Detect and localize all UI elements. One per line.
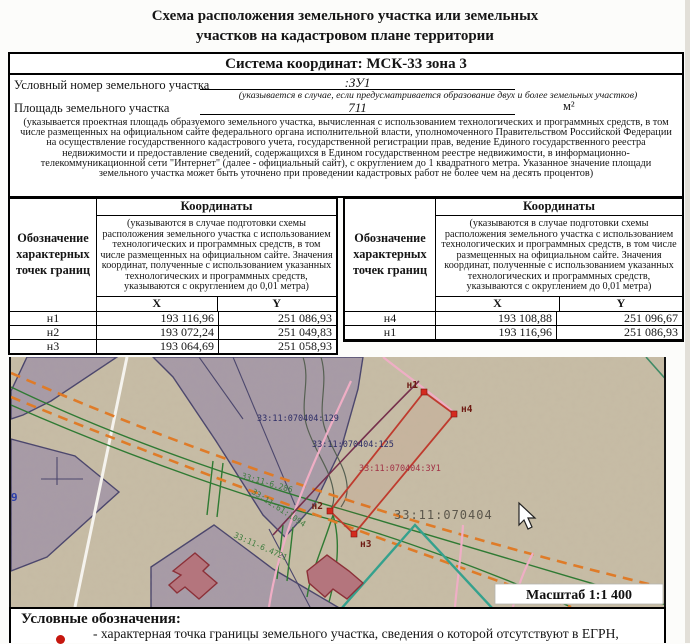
- scale-label: Масштаб 1:1 400: [526, 588, 632, 603]
- table-row: н1 193 116,96 251 086,93: [10, 311, 336, 325]
- area-label: Площадь земельного участка: [14, 101, 169, 116]
- legend-section: Условные обозначения: - характерная точк…: [9, 607, 666, 643]
- table-row: н1 193 116,96 251 086,93: [345, 325, 682, 339]
- conditional-number-value: :ЗУ1: [200, 75, 515, 90]
- point-column-header: Обозначение характерных точек границ: [345, 199, 435, 311]
- area-unit: м²: [563, 99, 575, 114]
- conditional-number-row: Условный номер земельного участка :ЗУ1 (…: [10, 75, 682, 101]
- coords-header: Координаты: [97, 199, 336, 216]
- table-row: н3 193 064,69 251 058,93: [10, 339, 336, 353]
- coords-column: Координаты (указываются в случае подгото…: [435, 199, 682, 311]
- x-header: X: [97, 297, 217, 311]
- area-row: Площадь земельного участка 711 м²: [10, 101, 682, 116]
- area-value: 711: [200, 100, 515, 115]
- y-header: Y: [559, 297, 682, 311]
- xy-header-row: X Y: [436, 297, 682, 311]
- point-label-n1: н1: [407, 380, 419, 391]
- parcel-label-125: 33:11:070404:125: [312, 440, 394, 450]
- scan-edge-shadow: [685, 0, 690, 643]
- coordinates-table-right: Обозначение характерных точек границ Коо…: [343, 197, 684, 342]
- point-label-n4: н4: [461, 404, 473, 415]
- blue-parcel-number: 9: [11, 491, 18, 504]
- point-column-header: Обозначение характерных точек границ: [10, 199, 96, 311]
- coordinate-system-header: Система координат: МСК-33 зона 3: [10, 54, 682, 75]
- conditional-number-label: Условный номер земельного участка: [14, 78, 209, 93]
- coords-note: (указываются в случае подготовки схемы р…: [97, 216, 336, 297]
- legend-item: - характерная точка границы земельного у…: [93, 627, 669, 642]
- point-label-n3: н3: [360, 539, 372, 550]
- cadastral-map: н1 н4 н3 н2 33:11:070404:129 33:11:07040…: [9, 357, 666, 607]
- coords-column: Координаты (указываются в случае подгото…: [96, 199, 336, 311]
- point-label-n2: н2: [312, 501, 323, 512]
- title-line-2: участков на кадастровом плане территории: [0, 27, 690, 47]
- y-header: Y: [217, 297, 337, 311]
- area-note: (указывается проектная площадь образуемо…: [10, 116, 682, 196]
- quarter-label: 33:11:070404: [394, 508, 493, 522]
- xy-header-row: X Y: [97, 297, 336, 311]
- cadastral-map-canvas: н1 н4 н3 н2 33:11:070404:129 33:11:07040…: [11, 357, 666, 607]
- table-row: н4 193 108,88 251 096,67: [345, 311, 682, 325]
- coordinates-table-right-head: Обозначение характерных точек границ Коо…: [345, 199, 682, 311]
- coordinates-table-left-head: Обозначение характерных точек границ Коо…: [10, 199, 336, 311]
- parcel-label-129: 33:11:070404:129: [257, 414, 339, 424]
- table-row: н2 193 072,24 251 049,83: [10, 325, 336, 339]
- x-header: X: [436, 297, 559, 311]
- parcel-label-zu1: 33:11:070404:ЗУ1: [359, 464, 441, 474]
- coords-note: (указываются в случае подготовки схемы р…: [436, 216, 682, 297]
- main-info-table: Система координат: МСК-33 зона 3 Условны…: [8, 52, 684, 198]
- coords-header: Координаты: [436, 199, 682, 216]
- coordinates-table-left: Обозначение характерных точек границ Коо…: [8, 197, 338, 355]
- title-line-1: Схема расположения земельного участка ил…: [0, 7, 690, 27]
- page-title: Схема расположения земельного участка ил…: [0, 7, 690, 46]
- scale-box: Масштаб 1:1 400: [495, 584, 663, 604]
